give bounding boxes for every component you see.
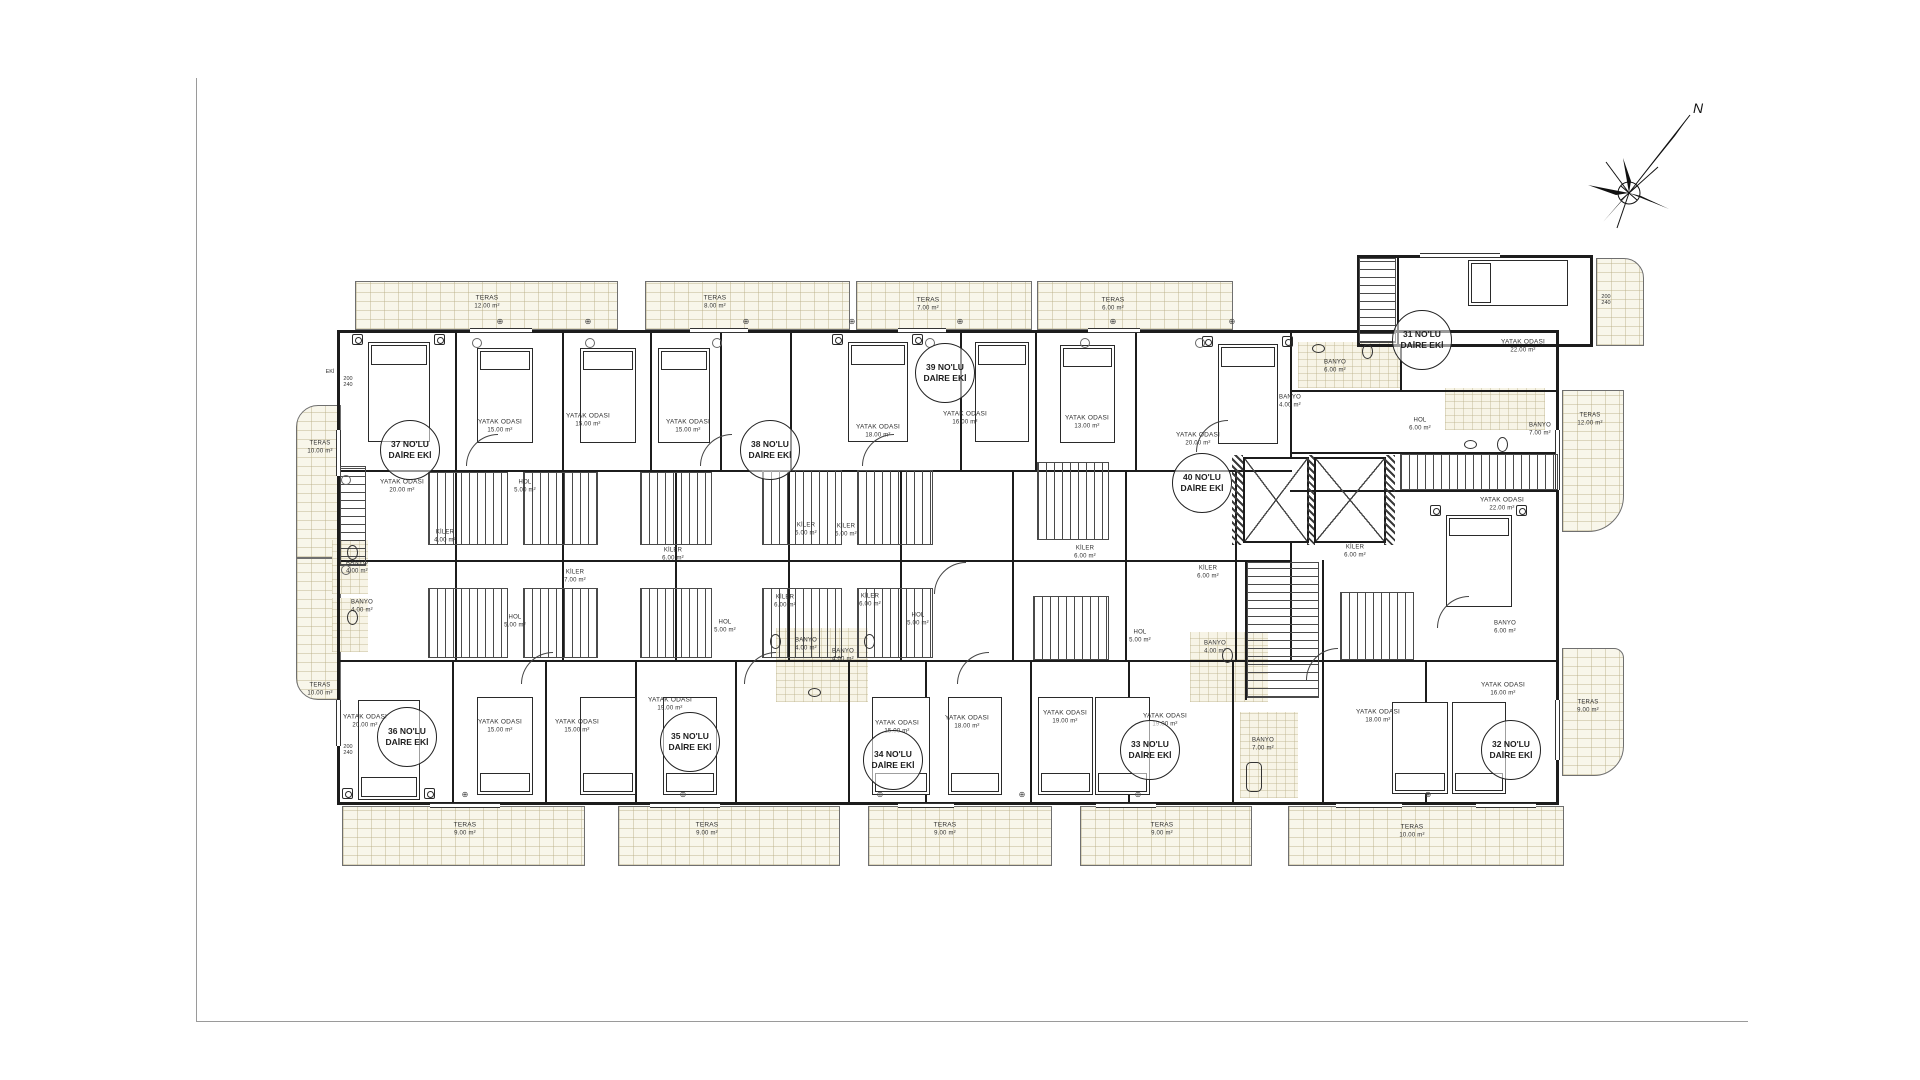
unit-circle-34: 34 NO'LUDAİRE EKİ — [863, 730, 923, 790]
inner-wall — [848, 660, 850, 805]
bed — [948, 697, 1002, 795]
room-label-bath: BANYO4.00 m² — [1279, 395, 1301, 410]
dim-tag: 200240 — [343, 376, 352, 388]
room-label-hall: HOL5.00 m² — [514, 480, 536, 495]
inner-wall — [337, 560, 1292, 562]
grid-bubble — [341, 475, 351, 485]
room-label-bedroom: YATAK ODASI15.00 m² — [478, 719, 522, 736]
toilet — [347, 545, 358, 560]
room-label-bath: BANYO7.00 m² — [1252, 738, 1274, 753]
room-label-bedroom: YATAK ODASI18.00 m² — [1356, 709, 1400, 726]
toilet — [864, 634, 875, 649]
room-label-bedroom: YATAK ODASI20.00 m² — [380, 479, 424, 496]
room-label-hall: HOL5.00 m² — [714, 620, 736, 635]
inner-wall — [1322, 560, 1324, 660]
riser-symbol: ⊕ — [1425, 791, 1432, 799]
terrace-top-4 — [1037, 281, 1233, 330]
room-label-bedroom: YATAK ODASI22.00 m² — [1480, 497, 1524, 514]
room-label-terrace: TERAS6.00 m² — [1102, 297, 1125, 314]
window — [690, 328, 748, 333]
dim-tag: 200240 — [1601, 294, 1610, 306]
staircase — [640, 472, 712, 545]
inner-wall — [337, 660, 1559, 662]
inner-wall — [1125, 470, 1127, 660]
room-label-hall: HOL5.00 m² — [504, 615, 526, 630]
room-label-terrace: TERAS9.00 m² — [934, 822, 957, 839]
nightstand — [1430, 505, 1441, 516]
inner-wall — [650, 330, 652, 470]
room-label-terrace: TERAS7.00 m² — [917, 297, 940, 314]
room-label-terrace: TERAS10.00 m² — [1399, 824, 1424, 841]
window — [1088, 328, 1140, 333]
bed — [1392, 702, 1448, 794]
staircase — [1037, 462, 1109, 540]
unit-circle-36: 36 NO'LUDAİRE EKİ — [377, 707, 437, 767]
window — [898, 803, 954, 808]
core-hatched-wall — [1384, 455, 1395, 545]
core-hatched-wall — [1232, 455, 1243, 545]
room-label-bedroom: YATAK ODASI19.00 m² — [648, 697, 692, 714]
elevator-shaft — [1243, 457, 1309, 543]
grid-bubble — [472, 338, 482, 348]
unit-circle-38: 38 NO'LUDAİRE EKİ — [740, 420, 800, 480]
room-label-bedroom: YATAK ODASI16.00 m² — [943, 411, 987, 428]
staircase — [428, 588, 508, 658]
window — [1420, 253, 1500, 258]
nightstand — [424, 788, 435, 799]
room-label-bedroom: YATAK ODASI18.00 m² — [856, 424, 900, 441]
room-label-bedroom: YATAK ODASI15.00 m² — [666, 419, 710, 436]
room-label-pantry: KİLER6.00 m² — [1344, 545, 1366, 560]
bed — [580, 697, 636, 795]
room-label-bath: BANYO4.00 m² — [1204, 641, 1226, 656]
room-label-terrace: TERAS9.00 m² — [1151, 822, 1174, 839]
riser-symbol: ⊕ — [1229, 318, 1236, 326]
eki-tag: EKİ — [326, 369, 335, 375]
inner-wall — [1035, 330, 1037, 470]
room-label-bedroom: YATAK ODASI19.00 m² — [1043, 710, 1087, 727]
terrace-left-1 — [296, 405, 341, 558]
unit-circle-39: 39 NO'LUDAİRE EKİ — [915, 343, 975, 403]
bed — [1468, 260, 1568, 306]
room-label-bedroom: YATAK ODASI15.00 m² — [566, 413, 610, 430]
terrace-right-1 — [1562, 390, 1624, 532]
room-label-bath: BANYO4.00 m² — [351, 600, 373, 615]
room-label-pantry: KİLER4.00 m² — [434, 530, 456, 545]
terrace-bottom-2 — [618, 806, 840, 866]
unit-circle-37: 37 NO'LUDAİRE EKİ — [380, 420, 440, 480]
inner-wall — [452, 660, 454, 805]
grid-bubble — [1080, 338, 1090, 348]
room-label-bedroom: YATAK ODASI22.00 m² — [1501, 339, 1545, 356]
toilet — [1362, 344, 1373, 359]
room-label-pantry: KİLER5.00 m² — [835, 524, 857, 539]
room-label-terrace: TERAS9.00 m² — [696, 822, 719, 839]
inner-wall — [455, 330, 457, 470]
unit-circle-35: 35 NO'LUDAİRE EKİ — [660, 712, 720, 772]
unit-circle-33: 33 NO'LUDAİRE EKİ — [1120, 720, 1180, 780]
room-label-terrace: TERAS9.00 m² — [454, 822, 477, 839]
toilet — [770, 634, 781, 649]
elevator-shaft — [1314, 457, 1386, 543]
terrace-bottom-5 — [1288, 806, 1564, 866]
bed — [477, 697, 533, 795]
riser-symbol: ⊕ — [497, 318, 504, 326]
window — [898, 328, 946, 333]
inner-wall — [1135, 330, 1137, 470]
room-label-pantry: KİLER6.00 m² — [859, 594, 881, 609]
room-label-pantry: KİLER6.00 m² — [1197, 566, 1219, 581]
staircase — [1033, 596, 1109, 660]
sink — [1312, 344, 1325, 353]
room-label-bath: BANYO4.00 m² — [795, 638, 817, 653]
riser-symbol: ⊕ — [585, 318, 592, 326]
compass-rose: N — [1572, 95, 1722, 235]
unit-circle-31: 31 NO'LUDAİRE EKİ — [1392, 310, 1452, 370]
room-label-pantry: KİLER6.00 m² — [1074, 546, 1096, 561]
room-label-terrace: TERAS10.00 m² — [307, 441, 332, 456]
compass-north-label: N — [1693, 100, 1704, 116]
room-label-hall: HOL5.00 m² — [1129, 630, 1151, 645]
window — [650, 803, 720, 808]
sheet-border-bottom — [196, 1021, 1748, 1022]
inner-wall — [1012, 470, 1014, 660]
riser-symbol: ⊕ — [877, 791, 884, 799]
bed — [1446, 515, 1512, 607]
window — [470, 328, 532, 333]
room-label-bath: BANYO6.00 m² — [1494, 621, 1516, 636]
room-label-terrace: TERAS12.00 m² — [474, 295, 499, 312]
riser-symbol: ⊕ — [1019, 791, 1026, 799]
window — [1555, 700, 1560, 760]
sink — [808, 688, 821, 697]
grid-bubble — [1195, 338, 1205, 348]
room-label-hall: HOL6.00 m² — [1409, 418, 1431, 433]
inner-wall — [1030, 660, 1032, 805]
room-label-pantry: KİLER6.00 m² — [774, 595, 796, 610]
window — [1336, 803, 1402, 808]
terrace-top-3 — [856, 281, 1032, 330]
room-label-bath: BANYO4.00 m² — [832, 649, 854, 664]
sheet-border-left — [196, 78, 197, 1022]
grid-bubble — [585, 338, 595, 348]
staircase — [857, 470, 933, 545]
nightstand — [832, 334, 843, 345]
grid-bubble — [712, 338, 722, 348]
window — [1476, 803, 1536, 808]
room-label-terrace: TERAS9.00 m² — [1577, 700, 1599, 715]
riser-symbol: ⊕ — [680, 791, 687, 799]
staircase — [1400, 454, 1558, 490]
room-label-pantry: KİLER7.00 m² — [564, 570, 586, 585]
room-label-pantry: KİLER6.00 m² — [662, 548, 684, 563]
inner-wall — [1322, 660, 1324, 805]
nightstand — [342, 788, 353, 799]
staircase — [523, 588, 598, 658]
bathtub — [1246, 762, 1262, 792]
window — [1096, 803, 1156, 808]
unit-circle-32: 32 NO'LUDAİRE EKİ — [1481, 720, 1541, 780]
staircase — [1359, 258, 1396, 343]
window — [430, 803, 500, 808]
riser-symbol: ⊕ — [1110, 318, 1117, 326]
inner-wall — [1290, 330, 1292, 457]
riser-symbol: ⊕ — [743, 318, 750, 326]
room-label-bedroom: YATAK ODASI18.00 m² — [945, 715, 989, 732]
staircase — [1340, 592, 1414, 660]
room-label-bedroom: YATAK ODASI20.00 m² — [1176, 432, 1220, 449]
inner-wall — [1290, 390, 1559, 392]
riser-symbol: ⊕ — [462, 791, 469, 799]
sink — [1464, 440, 1477, 449]
room-label-bedroom: YATAK ODASI13.00 m² — [1065, 415, 1109, 432]
riser-symbol: ⊕ — [1135, 791, 1142, 799]
window — [336, 700, 341, 746]
nightstand — [352, 334, 363, 345]
nightstand — [434, 334, 445, 345]
dim-tag: 200240 — [343, 744, 352, 756]
staircase — [640, 588, 712, 658]
riser-symbol: ⊕ — [849, 318, 856, 326]
nightstand — [1282, 336, 1293, 347]
room-label-bath: BANYO6.00 m² — [1324, 360, 1346, 375]
terrace-bottom-3 — [868, 806, 1052, 866]
room-label-bath: BANYO7.00 m² — [1529, 423, 1551, 438]
room-label-terrace: TERAS10.00 m² — [307, 683, 332, 698]
room-label-bedroom: YATAK ODASI15.00 m² — [478, 419, 522, 436]
room-label-terrace: TERAS12.00 m² — [1577, 413, 1602, 428]
inner-wall — [562, 330, 564, 470]
unit-circle-40: 40 NO'LUDAİRE EKİ — [1172, 453, 1232, 513]
toilet — [1497, 437, 1508, 452]
nightstand — [912, 334, 923, 345]
inner-wall — [735, 660, 737, 805]
inner-wall — [1232, 660, 1234, 805]
room-label-pantry: KİLER5.00 m² — [795, 523, 817, 538]
room-label-bedroom: YATAK ODASI15.00 m² — [555, 719, 599, 736]
room-label-bedroom: YATAK ODASI16.00 m² — [1481, 682, 1525, 699]
room-label-terrace: TERAS8.00 m² — [704, 295, 727, 312]
room-label-bath: BANYO4.00 m² — [346, 561, 368, 576]
floor-plan-sheet: N — [0, 0, 1920, 1080]
riser-symbol: ⊕ — [957, 318, 964, 326]
room-label-hall: HOL5.00 m² — [907, 613, 929, 628]
